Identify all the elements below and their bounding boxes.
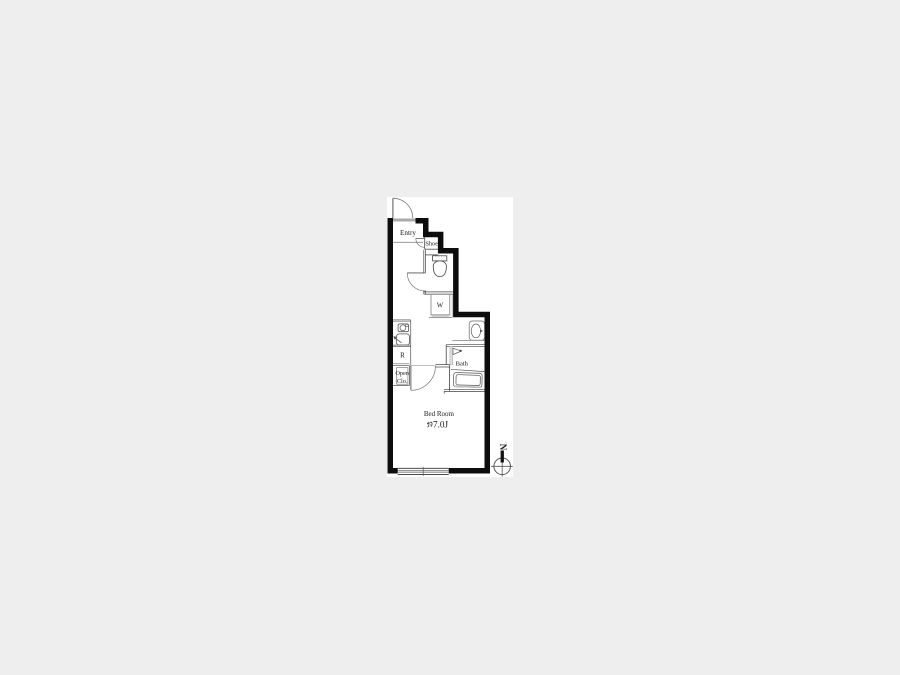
svg-text:N: N bbox=[498, 444, 508, 451]
svg-text:Bed Room: Bed Room bbox=[424, 410, 455, 418]
svg-text:Open: Open bbox=[395, 370, 409, 377]
svg-text:R: R bbox=[400, 351, 405, 359]
svg-text:Shoe: Shoe bbox=[425, 241, 438, 248]
svg-text:Clo.: Clo. bbox=[397, 378, 408, 385]
svg-text:Bath: Bath bbox=[456, 361, 469, 368]
svg-text:W: W bbox=[437, 302, 444, 309]
svg-text:7.0J: 7.0J bbox=[433, 420, 448, 430]
svg-text:Entry: Entry bbox=[400, 229, 416, 237]
